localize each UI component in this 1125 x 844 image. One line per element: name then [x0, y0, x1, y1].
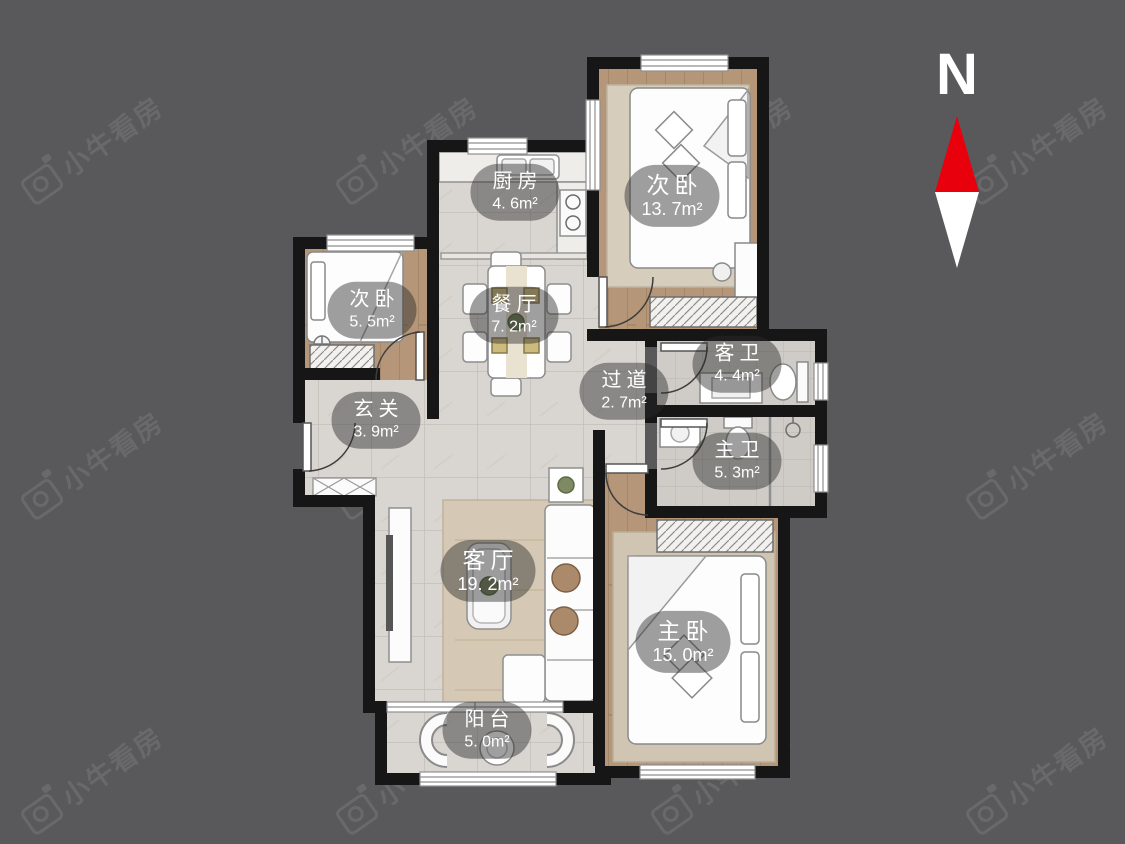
plant — [558, 477, 574, 493]
pillow — [311, 262, 325, 320]
window-balcony — [420, 772, 556, 786]
pillow — [741, 652, 759, 722]
room-label-entry: 玄关 3. 9m² — [332, 392, 421, 449]
room-label-dining: 餐厅 7. 2m² — [470, 287, 559, 344]
wardrobe — [650, 297, 757, 327]
window-bedroom-2-left — [586, 100, 600, 190]
room-label-guest-bath: 客卫 4. 4m² — [693, 336, 782, 393]
window-master-bedroom — [640, 765, 755, 779]
shoe-cabinet — [313, 478, 376, 496]
pillow — [728, 162, 746, 218]
room-label-balcony: 阳台 5. 0m² — [443, 702, 532, 759]
pouf — [550, 607, 578, 635]
window-guest-bath — [814, 363, 828, 400]
compass-arrow — [935, 112, 979, 272]
desk-chair — [713, 263, 731, 281]
chair — [491, 378, 521, 396]
entry-furniture — [313, 478, 376, 496]
pillow — [741, 574, 759, 644]
pillow — [728, 100, 746, 156]
compass-arrow-south — [935, 192, 979, 268]
room-label-master-bedroom: 主卧 15. 0m² — [635, 611, 730, 673]
floorplan-screenshot: 小牛看房 小牛看房 小牛看房 小牛看房 小牛看房 小牛看房 小牛看房 小牛看房 … — [0, 0, 1125, 844]
room-label-master-bath: 主卫 5. 3m² — [693, 433, 782, 490]
chair — [547, 332, 571, 362]
room-label-bedroom-3: 次卧 5. 5m² — [328, 282, 417, 339]
window-kitchen — [468, 138, 527, 154]
ottoman — [503, 655, 545, 703]
compass-arrow-north — [935, 116, 979, 192]
pouf — [552, 564, 580, 592]
room-label-hallway: 过道 2. 7m² — [580, 363, 669, 420]
room-label-kitchen: 厨房 4. 6m² — [471, 164, 560, 221]
toilet-tank — [797, 362, 808, 402]
sofa — [545, 505, 595, 701]
tv — [386, 535, 393, 631]
stove — [560, 190, 586, 236]
window-bedroom-2-top — [641, 55, 728, 71]
compass: N — [912, 46, 1002, 272]
window-bedroom-3 — [327, 235, 414, 251]
window-master-bath — [814, 445, 828, 492]
compass-north-label: N — [912, 46, 1002, 104]
room-label-living: 客厅 19. 2m² — [440, 540, 535, 602]
room-label-bedroom-2: 次卧 13. 7m² — [624, 165, 719, 227]
wardrobe — [657, 520, 773, 552]
